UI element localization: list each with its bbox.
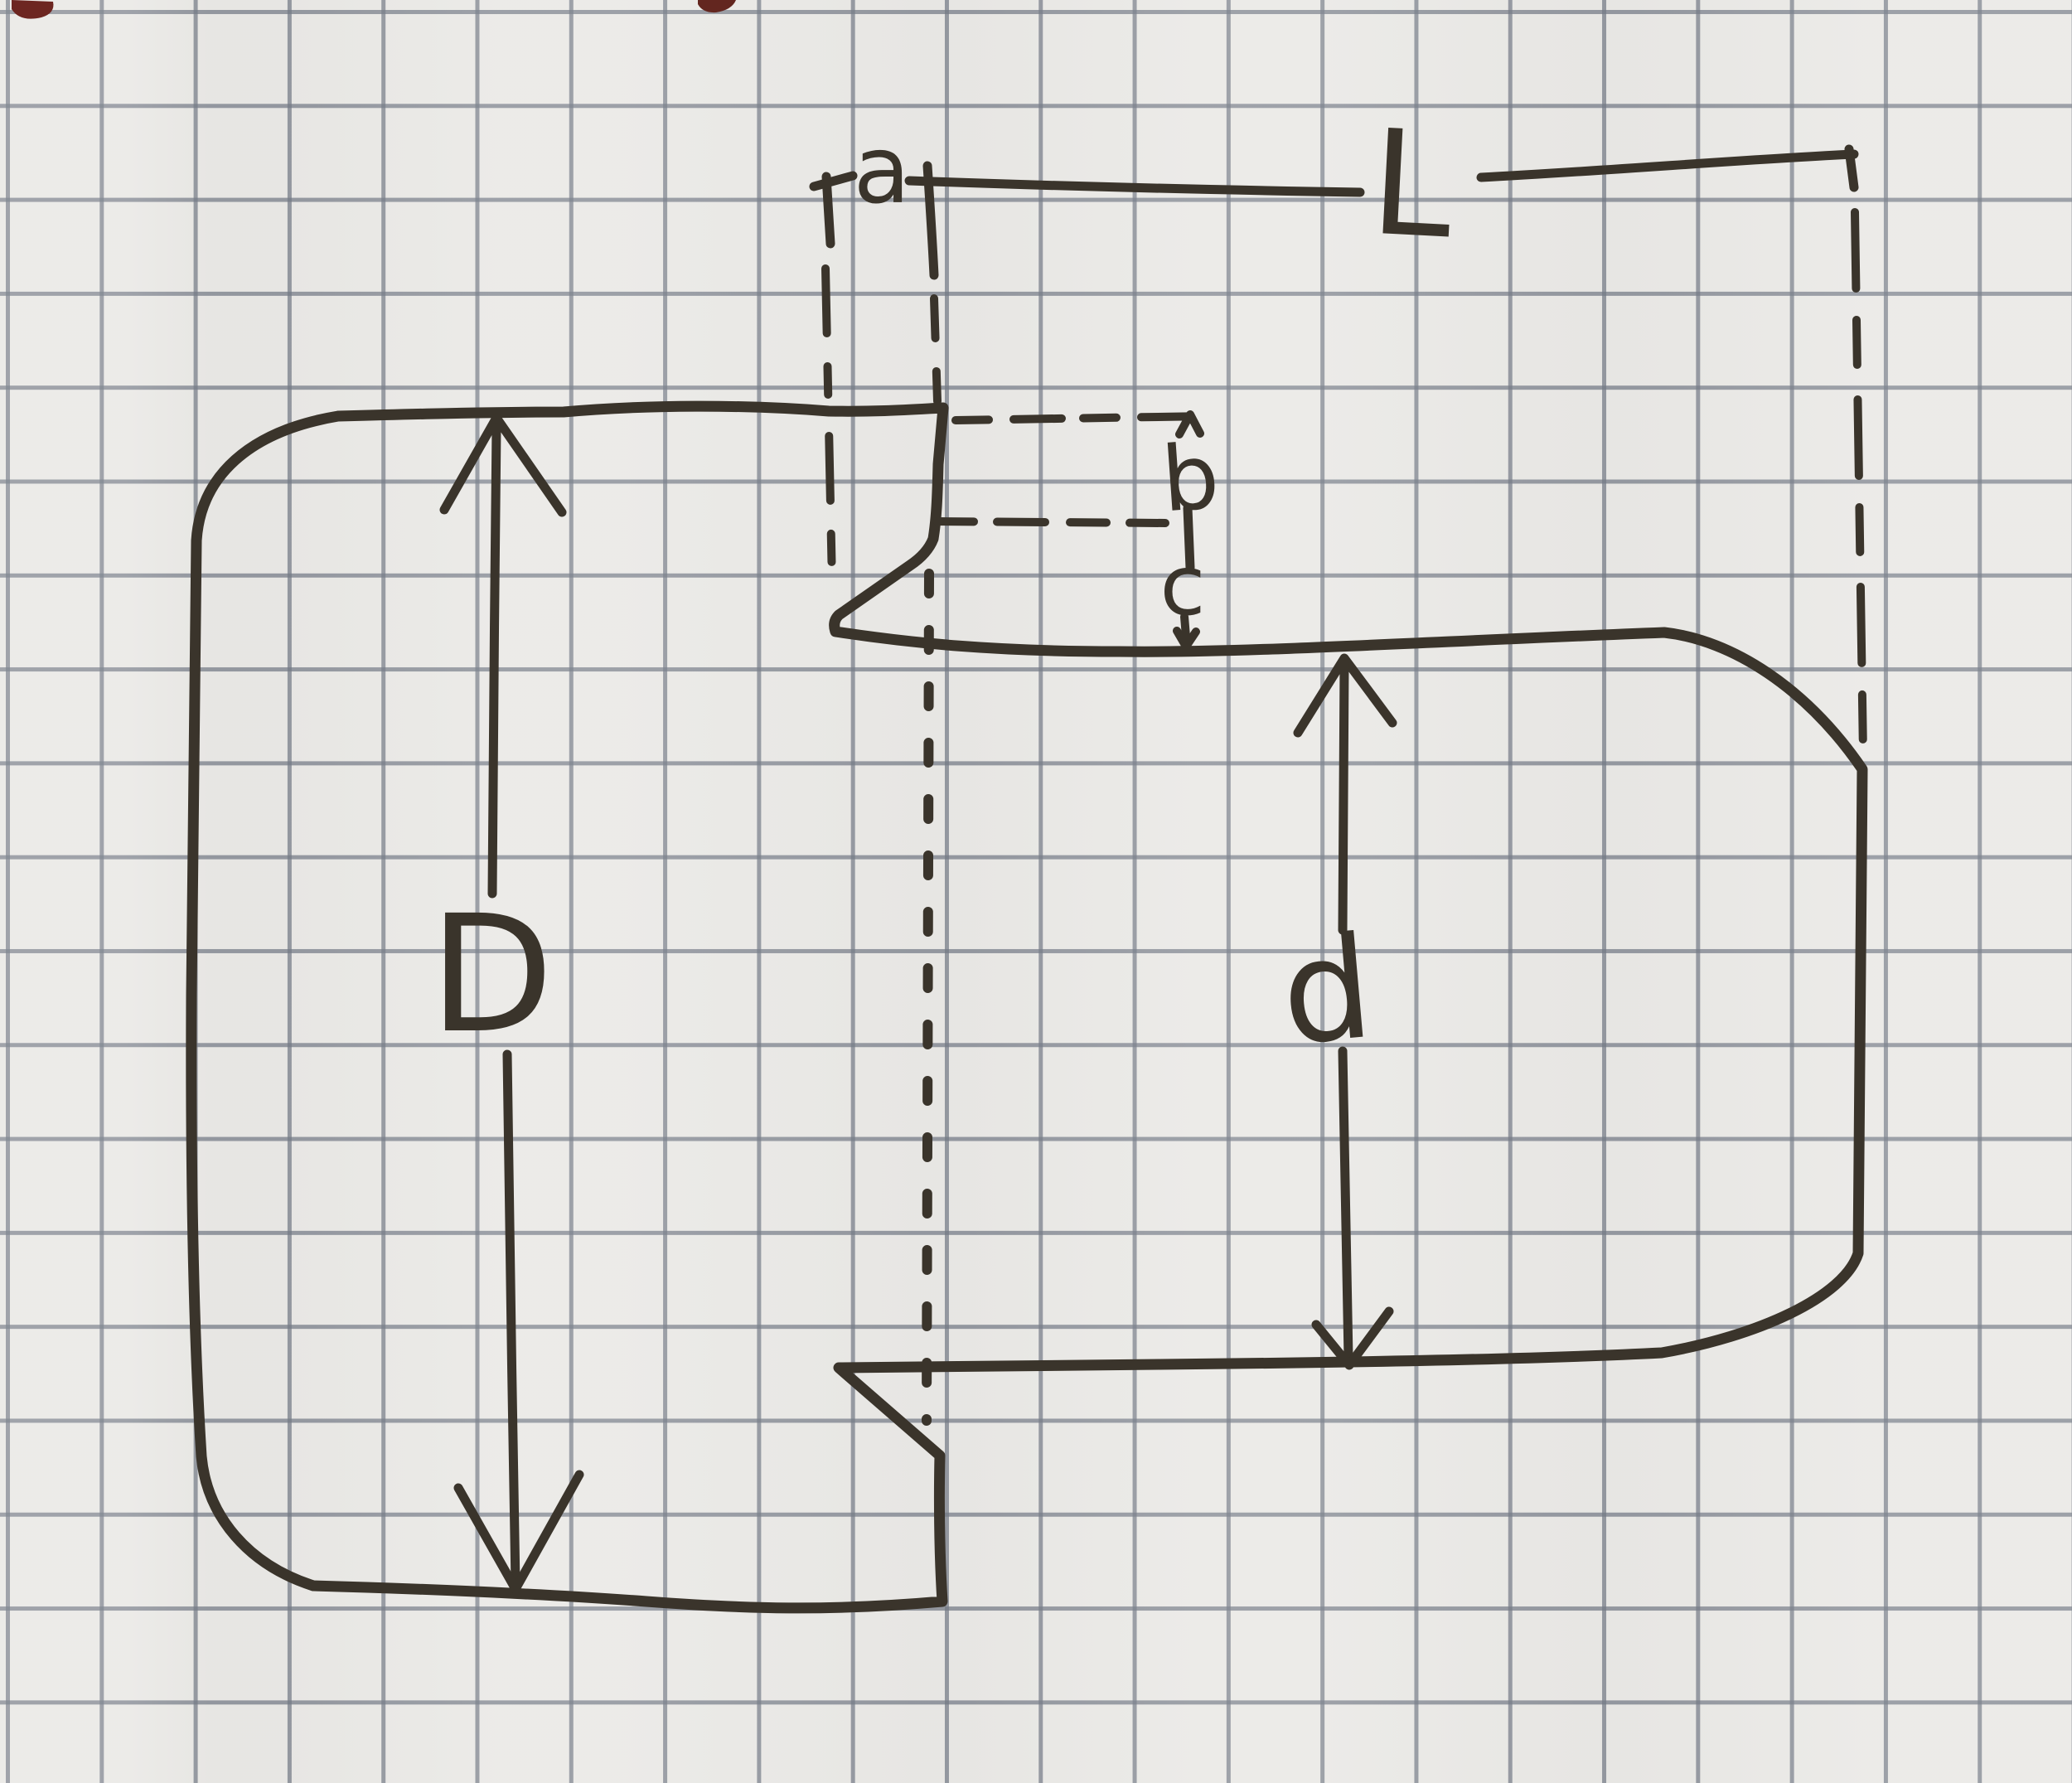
label-dim-b: b xyxy=(1159,425,1222,532)
dimension-d-line-lower xyxy=(1343,1051,1348,1358)
extension-line-dashed-left-a xyxy=(825,269,832,584)
red-ink-mark xyxy=(698,0,736,12)
dimension-a-tick-left xyxy=(814,176,853,187)
label-length-a: a xyxy=(854,117,911,225)
dimension-d-line-upper xyxy=(1343,665,1344,930)
dimension-L-line-right xyxy=(1481,154,1854,177)
label-diameter-D: D xyxy=(429,880,554,1068)
dimension-L-line-left xyxy=(909,181,1360,192)
dimension-a-extension-left-solid xyxy=(826,177,830,244)
dimension-D-line-lower xyxy=(507,1054,516,1585)
dimension-D-line-upper xyxy=(492,428,496,894)
extension-line-dashed-right-a xyxy=(934,298,937,401)
dimension-L-tick-right xyxy=(1849,149,1854,187)
hidden-line-dotted-step-face xyxy=(927,574,929,1421)
red-ink-mark xyxy=(12,0,53,19)
extension-line-dashed-L-right xyxy=(1855,212,1863,754)
graph-paper-sheet: D d a L b c xyxy=(0,0,2072,1783)
dimension-D-arrowhead-top xyxy=(444,418,562,512)
label-diameter-d: d xyxy=(1276,906,1379,1078)
dashed-line-b-lower xyxy=(937,521,1165,523)
label-dim-c: c xyxy=(1160,537,1206,634)
dashed-line-b-upper xyxy=(956,416,1207,420)
label-length-L: L xyxy=(1367,99,1456,272)
sketch-canvas: D d a L b c xyxy=(0,0,2072,1783)
